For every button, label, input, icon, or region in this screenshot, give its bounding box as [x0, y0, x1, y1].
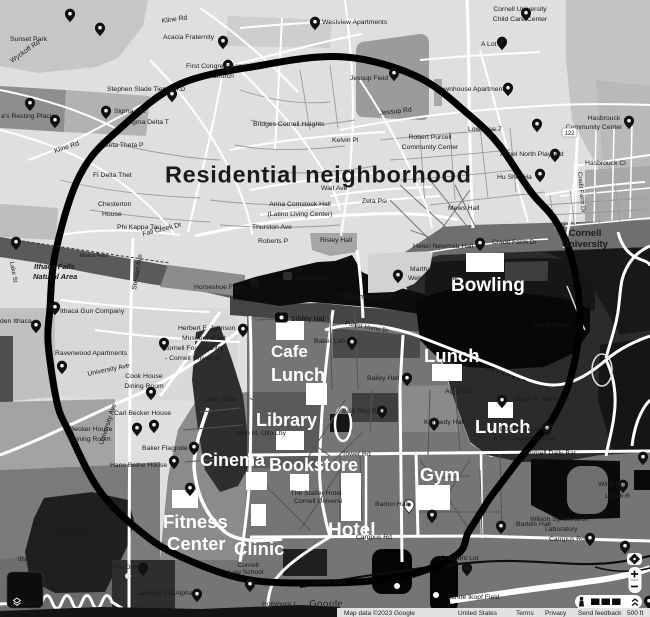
svg-text:Schoe Ikopf Field: Schoe Ikopf Field: [447, 594, 500, 601]
svg-text:Bailey Hall: Bailey Hall: [367, 375, 400, 382]
svg-text:Cook House: Cook House: [125, 373, 163, 380]
svg-text:Horseshoe Falls: Horseshoe Falls: [194, 284, 244, 291]
svg-text:Law School: Law School: [228, 569, 264, 576]
svg-text:Cornell: Cornell: [569, 228, 602, 239]
svg-text:The Statler Hotel: The Statler Hotel: [291, 490, 342, 497]
svg-text:Bookstore: Bookstore: [269, 455, 358, 475]
svg-text:Fitness: Fitness: [163, 511, 228, 532]
svg-text:Map data ©2023 Google: Map data ©2023 Google: [344, 609, 415, 617]
svg-text:Hasbrouck: Hasbrouck: [588, 115, 621, 122]
svg-text:Upson Hall: Upson Hall: [312, 579, 346, 586]
svg-text:House: House: [102, 211, 122, 218]
svg-text:Bridges Cornell Heights: Bridges Cornell Heights: [253, 121, 325, 128]
svg-text:Hasbrouck Cl: Hasbrouck Cl: [585, 160, 626, 167]
svg-text:Sibley Hal: Sibley Hal: [291, 316, 325, 323]
svg-text:Gym: Gym: [420, 465, 460, 485]
svg-text:Warly Island: Warly Island: [533, 322, 570, 329]
svg-text:- Cornell University: - Cornell University: [165, 355, 223, 362]
svg-text:Lambda Chi Alpha: Lambda Chi Alpha: [137, 590, 193, 597]
svg-text:Cafe: Cafe: [271, 342, 308, 361]
svg-text:Robert Purcell: Robert Purcell: [408, 134, 452, 141]
svg-text:Carl Becker House: Carl Becker House: [114, 410, 171, 417]
svg-text:Ithaca Gun Company: Ithaca Gun Company: [60, 308, 125, 315]
svg-text:Send feedback: Send feedback: [578, 610, 622, 617]
svg-text:Terms: Terms: [516, 610, 534, 617]
svg-text:Lunch: Lunch: [271, 365, 325, 385]
svg-text:H: H: [590, 289, 594, 295]
svg-text:Church: Church: [212, 73, 234, 80]
svg-text:Wing Hall: Wing Hall: [598, 481, 628, 488]
svg-text:Ithaca Falls: Ithaca Falls: [34, 262, 75, 271]
svg-text:John M. Olin Lby: John M. Olin Lby: [235, 430, 287, 437]
svg-text:Cornell Center of: Cornell Center of: [499, 426, 550, 433]
svg-text:Appel North Playfield: Appel North Playfield: [500, 151, 564, 158]
svg-text:Privacy: Privacy: [545, 610, 567, 617]
svg-text:Jessup Field: Jessup Field: [350, 75, 388, 82]
svg-text:Cornell Ave: Cornell Ave: [82, 503, 114, 510]
svg-text:Wait Ave: Wait Ave: [321, 185, 348, 192]
svg-text:Ag Quad: Ag Quad: [445, 388, 472, 395]
svg-text:Lunch: Lunch: [424, 345, 480, 366]
svg-text:Stephen Slade Tien, Ph.D: Stephen Slade Tien, Ph.D: [107, 86, 185, 93]
svg-text:Anna Comstock Hall: Anna Comstock Hall: [269, 201, 331, 208]
svg-text:University: University: [562, 239, 609, 250]
svg-text:Cinema: Cinema: [200, 450, 266, 470]
svg-text:Bowling: Bowling: [451, 275, 525, 296]
svg-text:(Latino Living Center): (Latino Living Center): [268, 211, 333, 218]
svg-text:Triphammer Falls: Triphammer Falls: [338, 292, 396, 301]
svg-text:den Ithaca: den Ithaca: [0, 318, 32, 325]
svg-text:Dining Room: Dining Room: [124, 383, 164, 390]
svg-text:Lynah R: Lynah R: [605, 493, 630, 500]
svg-text:Campus Rd: Campus Rd: [356, 534, 392, 541]
svg-text:The Dorm: The Dorm: [112, 564, 143, 571]
svg-text:Beta Theta P: Beta Theta P: [104, 142, 144, 149]
svg-text:Clinic: Clinic: [234, 538, 284, 559]
svg-text:Sunset Park: Sunset Park: [10, 36, 48, 43]
svg-text:Ravenwood Apartments: Ravenwood Apartments: [55, 350, 128, 357]
svg-text:Hu Shih Ha: Hu Shih Ha: [497, 174, 532, 181]
svg-text:Library: Library: [256, 410, 317, 430]
svg-text:Herbert F. Johnson: Herbert F. Johnson: [178, 325, 236, 332]
svg-text:Westview Apartments: Westview Apartments: [322, 19, 388, 26]
svg-text:Zeta Psi: Zeta Psi: [362, 198, 387, 205]
svg-text:Low Rise 7: Low Rise 7: [468, 126, 502, 133]
svg-text:Acacia Fraternity: Acacia Fraternity: [163, 34, 215, 41]
svg-text:Barton Hall: Barton Hall: [375, 501, 409, 508]
svg-text:Cornell Universi: Cornell Universi: [294, 498, 342, 505]
svg-text:United States: United States: [458, 610, 498, 617]
svg-text:Layers: Layers: [23, 601, 41, 607]
svg-text:Baker Lab: Baker Lab: [314, 338, 345, 345]
svg-text:Welcome Center: Welcome Center: [408, 275, 459, 282]
svg-text:Museum of Art: Museum of Art: [182, 335, 226, 342]
svg-text:Kennedy Hall: Kennedy Hall: [424, 419, 465, 426]
svg-text:Fi Delta Thet: Fi Delta Thet: [93, 172, 132, 179]
svg-text:Albert R. Mann Lib: Albert R. Mann Lib: [513, 396, 570, 403]
svg-text:Ithaca Falls: Ithaca Falls: [80, 253, 108, 259]
svg-text:Mews Hall: Mews Hall: [448, 205, 480, 212]
svg-text:Roberts P: Roberts P: [258, 238, 289, 245]
svg-text:Cornell: Cornell: [237, 562, 259, 569]
svg-text:Cornell Daily Bar: Cornell Daily Bar: [525, 450, 577, 457]
svg-text:Libe Slope: Libe Slope: [205, 396, 237, 403]
svg-text:Sigma Delta T: Sigma Delta T: [126, 119, 169, 126]
svg-text:Helen Newman Hall: Helen Newman Hall: [413, 243, 474, 250]
svg-text:Sackett Foot Bridge: Sackett Foot Bridge: [546, 276, 606, 283]
svg-text:B&B Red Barn: B&B Red Barn: [342, 408, 386, 415]
svg-text:Kelvin Pl: Kelvin Pl: [332, 137, 359, 144]
svg-text:Baker Flagpole: Baker Flagpole: [142, 445, 188, 452]
svg-text:Ithaca City Cemetery: Ithaca City Cemetery: [55, 528, 119, 535]
svg-text:Crescent Lot: Crescent Lot: [440, 555, 479, 562]
svg-text:Sigma Chi: Sigma Chi: [114, 108, 146, 115]
svg-text:Center: Center: [167, 533, 226, 554]
svg-text:Townhouse Apartments: Townhouse Apartments: [437, 86, 508, 93]
svg-text:Ithaca City Cemetery: Ithaca City Cemetery: [18, 557, 74, 563]
svg-text:Residential neighborhood: Residential neighborhood: [165, 162, 472, 188]
svg-text:Campus Rd: Campus Rd: [549, 536, 585, 543]
svg-text:A Lot: A Lot: [481, 41, 497, 48]
svg-text:Cradit Farm Dr: Cradit Farm Dr: [492, 239, 538, 246]
svg-text:A Sustainable Future: A Sustainable Future: [493, 435, 556, 442]
svg-text:Hans Bethe House: Hans Bethe House: [110, 462, 167, 469]
svg-text:Chesterton: Chesterton: [98, 201, 131, 208]
svg-text:Wilson Synchrotron: Wilson Synchrotron: [530, 516, 589, 523]
svg-text:Cornell Food Pantry: Cornell Food Pantry: [163, 345, 224, 352]
svg-text:Community Center: Community Center: [402, 144, 459, 151]
svg-text:Child Care Center: Child Care Center: [493, 16, 548, 23]
svg-text:Cornell University: Cornell University: [493, 6, 547, 13]
svg-text:Martha Van Tlag: Martha Van Tlag: [410, 266, 460, 273]
svg-text:Tower Rd: Tower Rd: [342, 451, 371, 458]
svg-text:Natural Area: Natural Area: [33, 272, 77, 281]
svg-text:First Congregational: First Congregational: [186, 63, 248, 70]
svg-text:a’s Resting Place: a’s Resting Place: [1, 113, 54, 120]
svg-text:500 ft: 500 ft: [627, 610, 643, 617]
svg-text:122: 122: [564, 131, 575, 137]
svg-text:Thurston Ave: Thurston Ave: [252, 224, 292, 231]
svg-text:Laboratory: Laboratory: [545, 526, 578, 533]
svg-text:Rocky Falls: Rocky Falls: [295, 275, 329, 282]
svg-text:Risley Hall: Risley Hall: [320, 237, 353, 244]
